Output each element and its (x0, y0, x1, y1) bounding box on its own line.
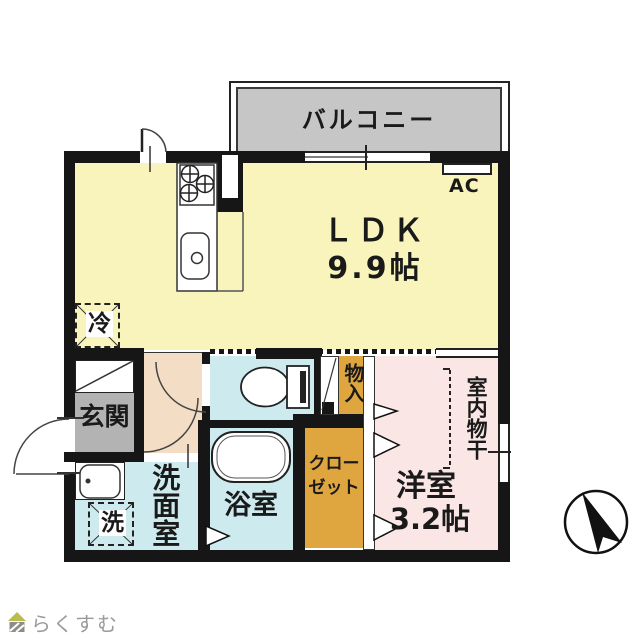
storage-label: 物入 (341, 363, 364, 403)
fridge-glyph: 冷 (86, 311, 113, 337)
western-sliding-door (436, 348, 498, 358)
entrance-label: 玄関 (75, 403, 134, 432)
closet-label-line2: ゼット (309, 476, 360, 500)
wall-right-upper (498, 151, 510, 425)
western-open-boundary (318, 349, 436, 354)
toilet-left-wall-a (202, 352, 210, 364)
bathroom-left-wall (198, 420, 210, 550)
closet-label-line1: クロー (309, 452, 360, 476)
ldk-size: 9.9帖 (300, 252, 450, 287)
logo-text: らくすむ (31, 608, 119, 637)
washer-glyph: 洗 (99, 510, 126, 536)
ac-unit (442, 163, 492, 175)
floorplan-canvas: バルコニー (0, 0, 640, 640)
compass-icon (558, 485, 634, 561)
shoe-cabinet (75, 360, 134, 393)
western-label: 洋室 (380, 470, 472, 505)
ldk-south-wall-seg (256, 348, 318, 359)
logo-house-icon (8, 611, 26, 633)
balcony-label: バルコニー (302, 107, 437, 135)
kitchen-duct-niche (222, 155, 238, 198)
wall-left-upper (64, 151, 75, 418)
wall-left-lower (64, 474, 75, 562)
closet-top-wall (293, 414, 366, 428)
entrance-bottom-wall (64, 452, 144, 462)
bathroom-floor (208, 428, 295, 550)
western-window (498, 424, 510, 482)
entrance-side-wall (134, 348, 144, 452)
washroom-label: 洗面室 (148, 463, 180, 547)
balcony-window (305, 151, 430, 163)
closet-label: クロー ゼット (303, 452, 365, 500)
ldk-door-arc (142, 129, 166, 152)
bath-label: 浴室 (213, 490, 289, 521)
wall-bottom (64, 550, 510, 562)
western-size: 3.2帖 (380, 503, 480, 536)
drying-label: 室内物干 (464, 376, 488, 460)
wall-top-left (64, 151, 140, 163)
toilet-floor (210, 356, 314, 420)
hallway-floor (144, 352, 202, 453)
ac-label: AC (449, 176, 480, 198)
entrance-top-wall (64, 348, 144, 360)
washroom-sink-unit (75, 462, 125, 500)
ldk-label: ＬＤＫ (300, 214, 450, 250)
entrance-door-arc (14, 419, 69, 474)
logo: らくすむ (8, 608, 148, 636)
ldk-door-gap (140, 151, 166, 163)
toilet-open-boundary (210, 349, 256, 354)
storage-wall-stub (322, 402, 334, 414)
balcony: バルコニー (236, 87, 502, 154)
